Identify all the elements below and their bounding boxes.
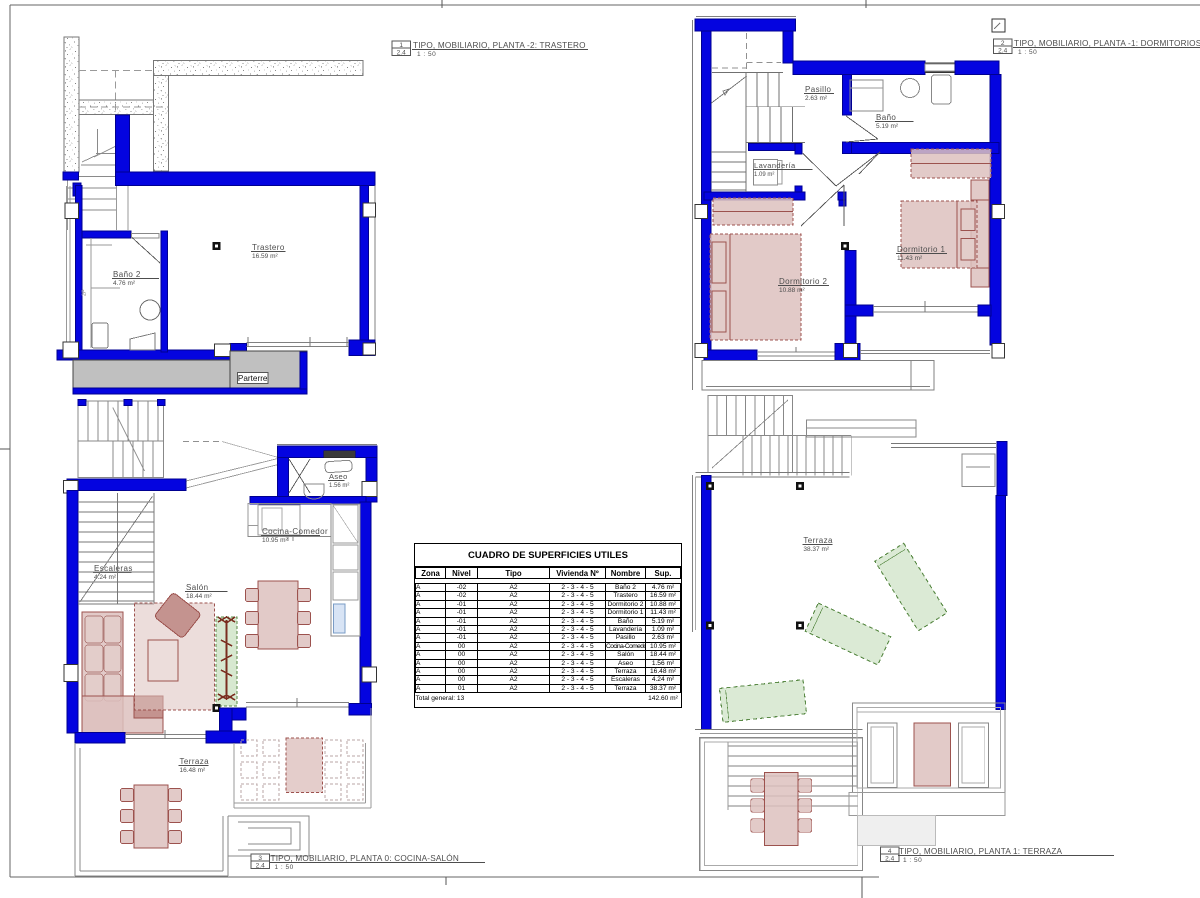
svg-text:Pasillo: Pasillo (805, 85, 832, 94)
svg-text:Terraza: Terraza (803, 536, 833, 545)
svg-text:Baño 2: Baño 2 (113, 270, 141, 279)
svg-text:Parterre: Parterre (238, 374, 268, 383)
svg-text:11.43 m²: 11.43 m² (897, 255, 923, 262)
svg-text:2.63 m²: 2.63 m² (805, 95, 828, 102)
svg-text:4.76 m²: 4.76 m² (113, 280, 136, 287)
svg-text:10.95 m²: 10.95 m² (262, 537, 288, 544)
svg-text:16.48 m²: 16.48 m² (180, 767, 206, 774)
svg-text:Terraza: Terraza (180, 757, 210, 766)
svg-text:1 : 50: 1 : 50 (275, 864, 294, 871)
svg-text:Trastero: Trastero (252, 243, 285, 252)
svg-text:4: 4 (888, 848, 892, 855)
svg-text:Cocina-Comedor: Cocina-Comedor (262, 527, 328, 536)
svg-text:2: 2 (1001, 40, 1005, 47)
svg-text:2.4: 2.4 (256, 862, 265, 869)
svg-text:TIPO, MOBILIARIO, PLANTA 1: TE: TIPO, MOBILIARIO, PLANTA 1: TERRAZA (899, 847, 1063, 856)
svg-text:4.24 m²: 4.24 m² (94, 574, 117, 581)
svg-text:TIPO, MOBILIARIO, PLANTA -1: D: TIPO, MOBILIARIO, PLANTA -1: DORMITORIOS (1014, 39, 1200, 48)
svg-text:1 : 50: 1 : 50 (417, 51, 436, 58)
svg-text:1.56 m²: 1.56 m² (329, 483, 349, 489)
svg-text:2.4: 2.4 (998, 47, 1007, 54)
svg-text:1.09 m²: 1.09 m² (754, 172, 774, 178)
svg-text:2P: 2P (82, 289, 88, 296)
svg-text:Dormitorio 1: Dormitorio 1 (897, 245, 946, 254)
svg-text:2.4: 2.4 (885, 855, 894, 862)
svg-text:Dormitorio 2: Dormitorio 2 (779, 277, 828, 286)
svg-text:18.44 m²: 18.44 m² (186, 593, 212, 600)
svg-text:Salón: Salón (186, 583, 208, 592)
svg-text:2.4: 2.4 (397, 49, 406, 56)
svg-text:Baño: Baño (876, 113, 896, 122)
svg-text:Lavandería: Lavandería (754, 161, 796, 170)
svg-text:16.59 m²: 16.59 m² (252, 253, 278, 260)
svg-text:38.37 m²: 38.37 m² (803, 546, 829, 553)
svg-text:3: 3 (258, 855, 262, 862)
svg-text:1: 1 (399, 42, 403, 49)
svg-text:TIPO, MOBILIARIO, PLANTA -2: T: TIPO, MOBILIARIO, PLANTA -2: TRASTERO (413, 41, 586, 50)
svg-text:TIPO, MOBILIARIO, PLANTA 0: CO: TIPO, MOBILIARIO, PLANTA 0: COCINA-SALÓN (271, 853, 459, 863)
svg-text:5.19 m²: 5.19 m² (876, 123, 899, 130)
svg-text:1 : 50: 1 : 50 (1018, 49, 1037, 56)
svg-text:10.88 m²: 10.88 m² (779, 287, 805, 294)
svg-text:1 : 50: 1 : 50 (903, 857, 922, 864)
svg-text:Aseo: Aseo (329, 472, 348, 481)
